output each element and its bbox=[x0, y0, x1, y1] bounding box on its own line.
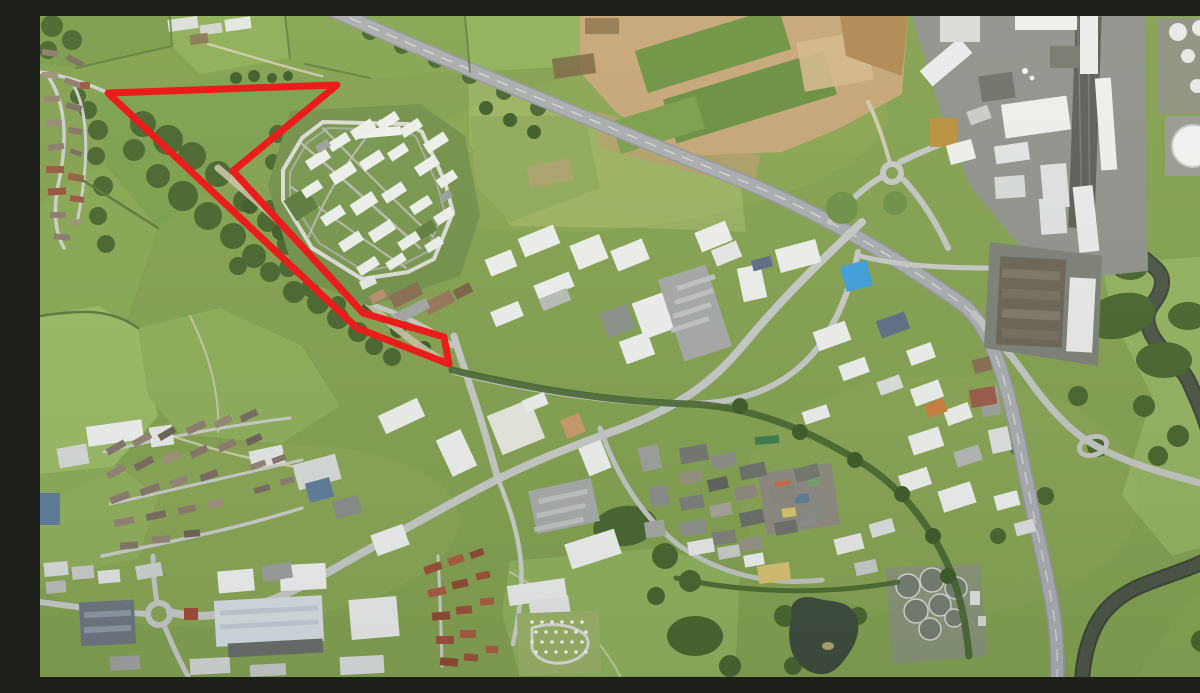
map-canvas bbox=[40, 16, 1200, 677]
photo-tint-overlay bbox=[40, 16, 1200, 677]
aerial-satellite-map bbox=[40, 16, 1200, 677]
